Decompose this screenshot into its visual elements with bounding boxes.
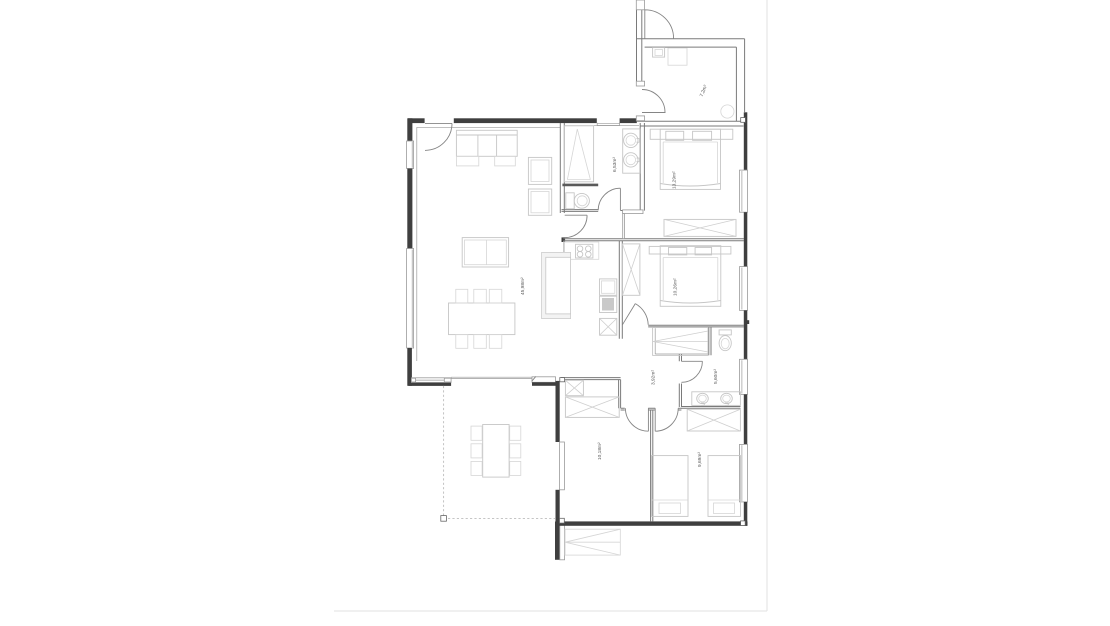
svg-text:10,26m²: 10,26m²	[673, 278, 679, 296]
svg-text:45,98m²: 45,98m²	[520, 277, 526, 295]
svg-text:9,69m²: 9,69m²	[697, 452, 703, 467]
svg-text:7,2m²: 7,2m²	[699, 84, 709, 98]
svg-text:13,29m²: 13,29m²	[672, 171, 678, 189]
svg-text:6,53m²: 6,53m²	[612, 157, 618, 172]
svg-text:10,18m²: 10,18m²	[597, 442, 603, 460]
svg-text:5,60m²: 5,60m²	[713, 369, 719, 384]
svg-text:3,92m²: 3,92m²	[651, 370, 657, 385]
